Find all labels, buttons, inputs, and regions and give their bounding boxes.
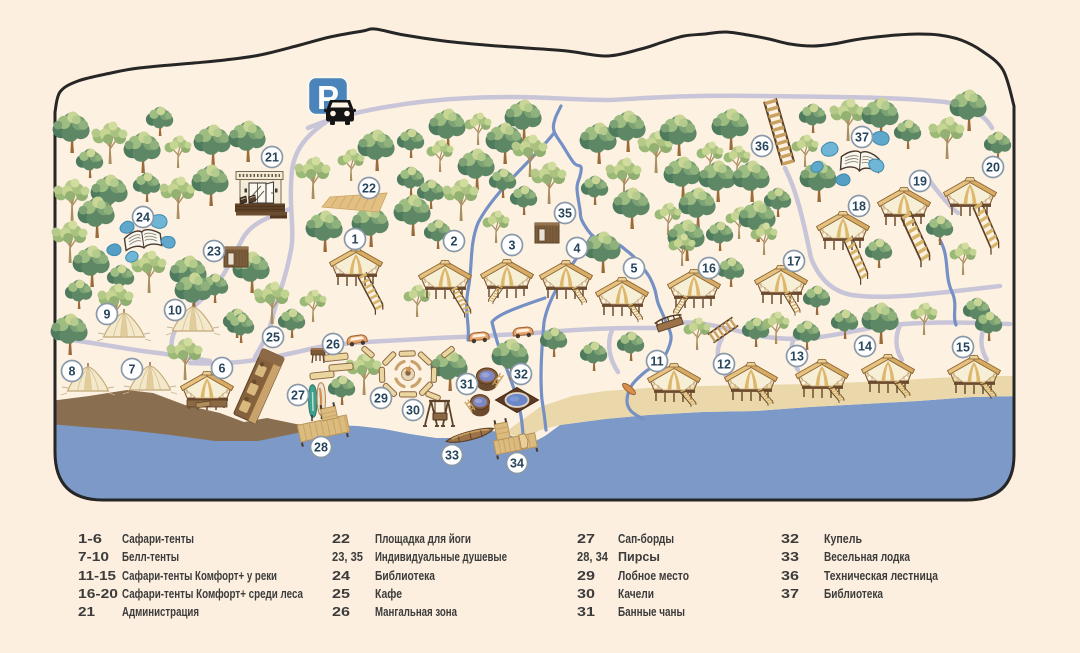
svg-text:8: 8	[69, 364, 76, 378]
svg-text:Библиотека: Библиотека	[375, 568, 436, 583]
svg-text:15: 15	[956, 340, 970, 354]
svg-text:37: 37	[781, 586, 799, 601]
svg-text:Сап-борды: Сап-борды	[618, 531, 674, 546]
svg-text:Администрация: Администрация	[122, 604, 199, 619]
svg-text:36: 36	[781, 568, 799, 583]
svg-text:4: 4	[574, 241, 581, 255]
svg-text:Сафари-тенты Комфорт+ у реки: Сафари-тенты Комфорт+ у реки	[122, 568, 277, 583]
svg-text:5: 5	[631, 261, 638, 275]
svg-text:Лобное место: Лобное место	[618, 568, 689, 583]
svg-text:Индивидуальные душевые: Индивидуальные душевые	[375, 549, 507, 564]
svg-text:18: 18	[852, 199, 866, 213]
svg-text:3: 3	[509, 238, 516, 252]
svg-text:26: 26	[326, 337, 340, 351]
svg-text:Купель: Купель	[824, 531, 862, 546]
svg-text:23, 35: 23, 35	[332, 549, 363, 564]
svg-text:28, 34: 28, 34	[577, 549, 609, 564]
svg-text:14: 14	[858, 339, 872, 353]
svg-text:Техническая лестница: Техническая лестница	[824, 568, 939, 583]
svg-text:Белл-тенты: Белл-тенты	[122, 549, 179, 564]
svg-text:Сафари-тенты: Сафари-тенты	[122, 531, 194, 546]
svg-text:34: 34	[510, 456, 524, 470]
svg-text:30: 30	[406, 403, 420, 417]
svg-text:28: 28	[314, 440, 328, 454]
svg-text:25: 25	[266, 330, 280, 344]
svg-text:36: 36	[755, 139, 769, 153]
svg-text:7: 7	[129, 362, 136, 376]
svg-text:17: 17	[787, 254, 801, 268]
svg-text:32: 32	[514, 367, 528, 381]
svg-text:21: 21	[78, 604, 95, 619]
svg-text:24: 24	[332, 568, 351, 583]
svg-text:Качели: Качели	[618, 586, 654, 601]
svg-text:1-6: 1-6	[78, 531, 102, 546]
svg-text:6: 6	[219, 361, 226, 375]
svg-text:2: 2	[451, 234, 458, 248]
svg-text:32: 32	[781, 531, 799, 546]
svg-text:12: 12	[717, 357, 731, 371]
svg-text:29: 29	[577, 568, 595, 583]
svg-text:24: 24	[136, 210, 150, 224]
svg-text:9: 9	[104, 307, 111, 321]
svg-text:Площадка для йоги: Площадка для йоги	[375, 531, 471, 546]
svg-text:35: 35	[558, 206, 572, 220]
svg-text:25: 25	[332, 586, 350, 601]
svg-text:Пирсы: Пирсы	[618, 549, 660, 564]
svg-text:27: 27	[577, 531, 595, 546]
svg-text:26: 26	[332, 604, 350, 619]
svg-text:Банные чаны: Банные чаны	[618, 604, 685, 619]
svg-text:37: 37	[855, 130, 869, 144]
svg-text:30: 30	[577, 586, 595, 601]
svg-text:7-10: 7-10	[78, 549, 109, 564]
svg-text:31: 31	[577, 604, 595, 619]
svg-text:29: 29	[374, 391, 388, 405]
svg-text:20: 20	[986, 160, 1000, 174]
svg-text:21: 21	[265, 150, 279, 164]
svg-text:Библиотека: Библиотека	[824, 586, 884, 601]
svg-text:33: 33	[781, 549, 799, 564]
svg-text:Кафе: Кафе	[375, 586, 402, 601]
svg-text:22: 22	[332, 531, 350, 546]
svg-text:31: 31	[460, 377, 474, 391]
svg-text:13: 13	[790, 349, 804, 363]
svg-text:23: 23	[207, 244, 221, 258]
svg-text:1: 1	[352, 232, 359, 246]
svg-text:Сафари-тенты Комфорт+ среди ле: Сафари-тенты Комфорт+ среди леса	[122, 586, 304, 601]
svg-text:27: 27	[291, 388, 305, 402]
svg-text:11: 11	[650, 354, 663, 368]
svg-text:16-20: 16-20	[78, 586, 118, 601]
svg-text:19: 19	[913, 174, 927, 188]
svg-text:33: 33	[445, 448, 459, 462]
svg-text:10: 10	[168, 303, 182, 317]
svg-text:22: 22	[362, 181, 376, 195]
svg-text:Мангальная зона: Мангальная зона	[375, 604, 458, 619]
svg-text:11-15: 11-15	[78, 568, 116, 583]
svg-text:Весельная лодка: Весельная лодка	[824, 549, 911, 564]
svg-text:16: 16	[702, 261, 716, 275]
